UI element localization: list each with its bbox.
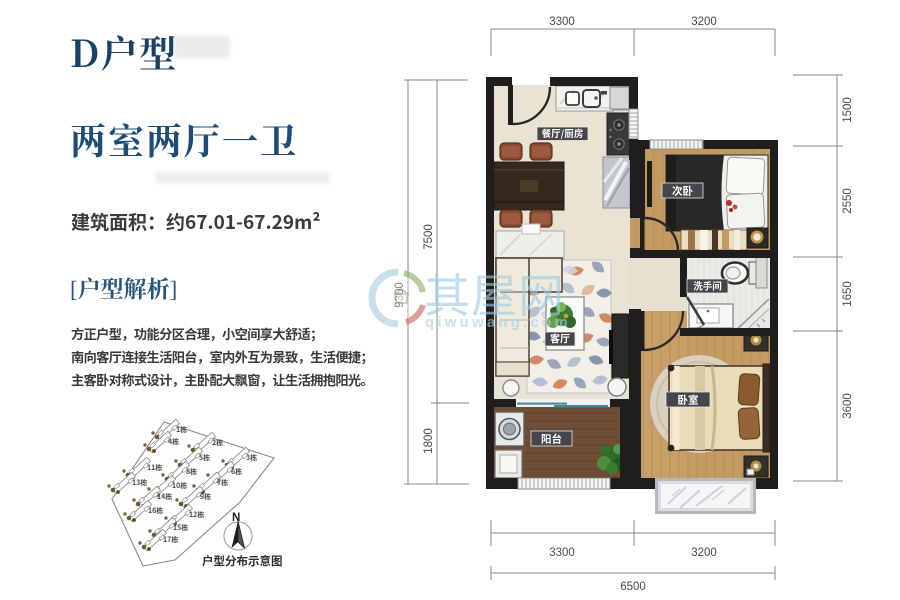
svg-text:4栋: 4栋 [168, 437, 179, 447]
svg-text:3300: 3300 [549, 16, 575, 28]
svg-text:8栋: 8栋 [186, 467, 197, 477]
svg-text:1栋: 1栋 [176, 425, 187, 435]
svg-text:客厅: 客厅 [550, 331, 570, 346]
svg-text:qiwuwang.com: qiwuwang.com [425, 314, 571, 331]
svg-text:2栋: 2栋 [212, 438, 223, 448]
svg-text:卧室: 卧室 [678, 393, 699, 408]
svg-text:3200: 3200 [691, 16, 717, 28]
svg-text:3300: 3300 [549, 547, 575, 559]
svg-text:7栋: 7栋 [217, 478, 228, 488]
svg-text:11栋: 11栋 [147, 463, 162, 473]
svg-text:6栋: 6栋 [231, 467, 242, 477]
svg-text:10栋: 10栋 [172, 481, 187, 491]
svg-text:户型分布示意图: 户型分布示意图 [202, 553, 283, 569]
svg-text:1800: 1800 [423, 428, 435, 454]
svg-text:12栋: 12栋 [189, 510, 204, 520]
svg-text:3200: 3200 [691, 547, 717, 559]
svg-text:1650: 1650 [842, 281, 854, 307]
svg-text:3栋: 3栋 [246, 453, 257, 463]
svg-text:1500: 1500 [842, 97, 854, 123]
svg-text:阳台: 阳台 [541, 432, 562, 447]
svg-text:14栋: 14栋 [157, 492, 172, 502]
svg-text:3600: 3600 [842, 393, 854, 419]
svg-text:2550: 2550 [842, 188, 854, 214]
svg-text:9栋: 9栋 [200, 492, 211, 502]
svg-text:15栋: 15栋 [173, 523, 188, 533]
svg-text:次卧: 次卧 [672, 184, 693, 199]
svg-text:餐厅/厨房: 餐厅/厨房 [542, 126, 584, 140]
svg-text:16栋: 16栋 [148, 506, 163, 516]
svg-text:17栋: 17栋 [163, 535, 178, 545]
svg-text:6500: 6500 [620, 581, 646, 593]
svg-text:5栋: 5栋 [199, 453, 210, 463]
svg-text:7500: 7500 [423, 224, 435, 250]
svg-text:洗手间: 洗手间 [693, 279, 722, 293]
svg-text:13栋: 13栋 [132, 478, 147, 488]
